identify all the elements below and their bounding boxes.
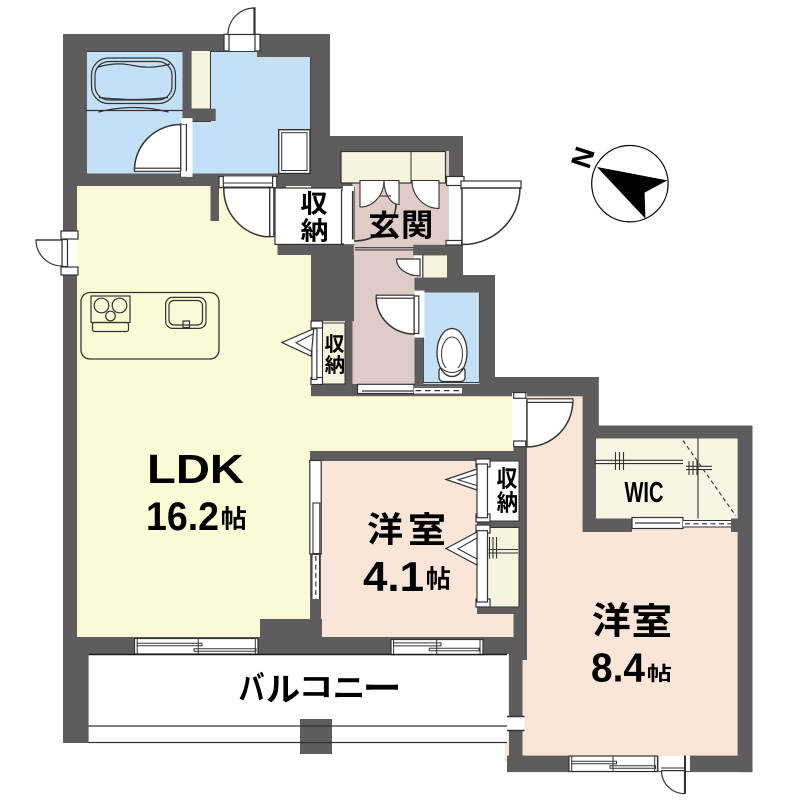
svg-text:LDK: LDK — [147, 446, 244, 492]
svg-text:8.4: 8.4 — [591, 645, 645, 691]
svg-text:16.2: 16.2 — [146, 495, 219, 539]
svg-text:4.1: 4.1 — [363, 553, 424, 600]
svg-text:WIC: WIC — [625, 477, 664, 509]
